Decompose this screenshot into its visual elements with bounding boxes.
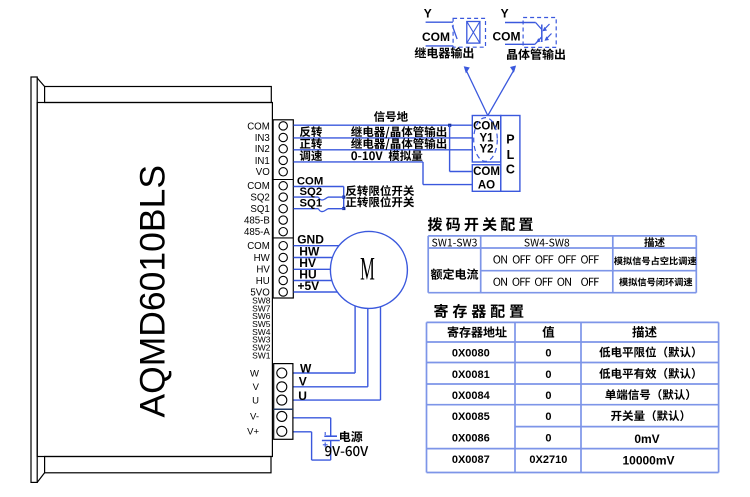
svg-text:SW1: SW1 [252, 350, 271, 360]
svg-text:0: 0 [545, 411, 551, 423]
svg-text:0: 0 [545, 369, 551, 381]
svg-text:COM: COM [493, 29, 521, 43]
svg-text:M: M [360, 251, 375, 288]
svg-text:VO: VO [256, 167, 270, 178]
svg-text:0X0080: 0X0080 [452, 347, 490, 359]
svg-text:0X0084: 0X0084 [452, 390, 491, 402]
svg-text:P: P [506, 133, 514, 147]
svg-text:0X0087: 0X0087 [452, 454, 490, 466]
svg-text:U: U [298, 389, 307, 403]
svg-text:Y2: Y2 [479, 143, 493, 155]
svg-text:COM: COM [247, 121, 270, 132]
svg-text:10000mV: 10000mV [622, 454, 674, 468]
svg-text:+5V: +5V [298, 279, 320, 293]
svg-text:V: V [253, 382, 260, 393]
svg-text:HW: HW [254, 253, 271, 264]
svg-text:0: 0 [545, 390, 551, 402]
svg-text:V: V [299, 374, 307, 388]
svg-text:SQ1: SQ1 [250, 204, 269, 215]
svg-text:0: 0 [545, 432, 551, 444]
svg-text:C: C [506, 162, 515, 176]
svg-text:HU: HU [256, 276, 270, 287]
svg-text:0X0086: 0X0086 [452, 432, 490, 444]
svg-text:COM: COM [422, 30, 450, 44]
svg-text:COM: COM [473, 121, 500, 133]
svg-text:V-: V- [250, 412, 259, 423]
svg-text:0: 0 [545, 347, 551, 359]
svg-text:COM: COM [247, 181, 270, 192]
svg-text:Y: Y [501, 6, 509, 20]
svg-text:485-B: 485-B [244, 216, 270, 227]
svg-text:IN2: IN2 [255, 144, 270, 155]
svg-text:SQ1: SQ1 [300, 197, 323, 209]
svg-text:0mV: 0mV [634, 432, 659, 446]
svg-text:0X2710: 0X2710 [529, 454, 567, 466]
svg-text:AO: AO [478, 180, 495, 192]
svg-text:Y: Y [424, 6, 432, 20]
svg-text:AQMD6010BLS: AQMD6010BLS [133, 165, 173, 418]
svg-text:SQ2: SQ2 [250, 193, 269, 204]
svg-text:V+: V+ [247, 427, 259, 438]
svg-text:COM: COM [247, 241, 270, 252]
svg-text:0X0085: 0X0085 [452, 411, 490, 423]
svg-text:IN1: IN1 [255, 156, 270, 167]
svg-text:COM: COM [473, 166, 500, 178]
svg-text:IN3: IN3 [255, 133, 270, 144]
svg-text:W: W [250, 368, 259, 379]
svg-text:485-A: 485-A [244, 227, 270, 238]
svg-text:L: L [507, 148, 515, 162]
svg-text:HV: HV [256, 265, 270, 276]
svg-text:SQ2: SQ2 [300, 186, 323, 198]
svg-text:U: U [252, 395, 259, 406]
svg-text:0X0081: 0X0081 [452, 369, 490, 381]
